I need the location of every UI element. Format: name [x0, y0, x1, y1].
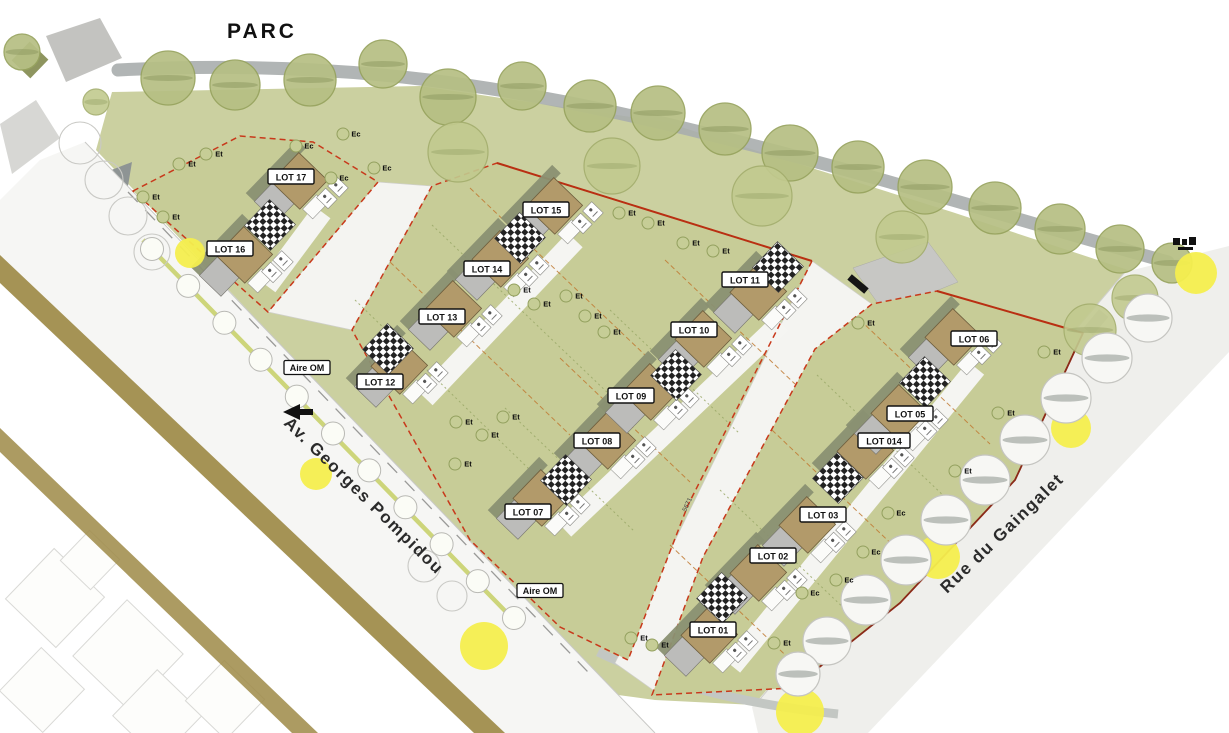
svg-text:LOT 09: LOT 09 — [616, 392, 647, 402]
svg-text:LOT 17: LOT 17 — [276, 173, 307, 183]
tree — [428, 122, 488, 182]
tree — [359, 40, 407, 88]
svg-text:Et: Et — [188, 160, 196, 169]
svg-text:LOT 014: LOT 014 — [866, 437, 902, 447]
svg-text:LOT 01: LOT 01 — [698, 626, 729, 636]
tree — [498, 62, 546, 110]
svg-text:LOT 11: LOT 11 — [730, 276, 760, 286]
lot-label-lot-17: LOT 17 — [268, 169, 314, 184]
tree — [732, 166, 792, 226]
tree — [83, 89, 109, 115]
lot-label-lot-14: LOT 14 — [464, 261, 510, 276]
svg-text:Et: Et — [613, 328, 621, 337]
park-label: PARC — [227, 20, 297, 43]
lot-label-lot-10: LOT 10 — [671, 322, 717, 337]
tree — [284, 54, 336, 106]
tree — [584, 138, 640, 194]
svg-text:Et: Et — [628, 209, 636, 218]
svg-text:LOT 03: LOT 03 — [808, 511, 839, 521]
tree — [141, 51, 195, 105]
tree — [210, 60, 260, 110]
lot-label-lot-02: LOT 02 — [750, 548, 796, 563]
street-tree — [776, 652, 820, 696]
lot-label-lot-13: LOT 13 — [419, 309, 465, 324]
street-tree — [960, 455, 1010, 505]
svg-text:Et: Et — [491, 431, 499, 440]
lot-label-lot-05: LOT 05 — [887, 406, 933, 421]
svg-text:Et: Et — [1053, 348, 1061, 357]
svg-text:LOT 05: LOT 05 — [895, 410, 926, 420]
lot-label-lot-11: LOT 11 — [722, 272, 768, 287]
tree — [1096, 225, 1144, 273]
street-tree — [921, 495, 971, 545]
svg-text:LOT 13: LOT 13 — [427, 313, 458, 323]
svg-text:Et: Et — [575, 292, 583, 301]
lot-label-lot-06: LOT 06 — [951, 331, 997, 346]
svg-text:Et: Et — [465, 418, 473, 427]
svg-text:LOT 10: LOT 10 — [679, 326, 710, 336]
svg-text:Et: Et — [964, 467, 972, 476]
svg-text:Aire OM: Aire OM — [523, 586, 558, 596]
lot-label-lot-07: LOT 07 — [505, 504, 551, 519]
svg-text:Et: Et — [657, 219, 665, 228]
svg-text:Ec: Ec — [871, 548, 880, 557]
tree — [631, 86, 685, 140]
lot-label-lot-15: LOT 15 — [523, 202, 569, 217]
lot-label-lot-08: LOT 08 — [574, 433, 620, 448]
hedge-tree — [285, 385, 308, 408]
lot-label-lot-16: LOT 16 — [207, 241, 253, 256]
lot-label-lot-12: LOT 12 — [357, 374, 403, 389]
tree — [4, 34, 40, 70]
tree — [898, 160, 952, 214]
svg-text:LOT 14: LOT 14 — [472, 265, 503, 275]
lot-label-lot-01: LOT 01 — [690, 622, 736, 637]
svg-text:Et: Et — [692, 239, 700, 248]
street-tree — [1124, 294, 1172, 342]
tree — [876, 211, 928, 263]
yellow-marker — [1175, 252, 1217, 294]
svg-text:LOT 07: LOT 07 — [513, 508, 544, 518]
tree — [832, 141, 884, 193]
svg-text:Ec: Ec — [304, 142, 313, 151]
svg-text:LOT 12: LOT 12 — [365, 378, 396, 388]
hedge-tree — [322, 422, 345, 445]
svg-text:Ec: Ec — [844, 576, 853, 585]
svg-text:Et: Et — [1007, 409, 1015, 418]
svg-text:LOT 15: LOT 15 — [531, 206, 562, 216]
aire-om-label: Aire OM — [517, 584, 563, 598]
tree — [1035, 204, 1085, 254]
tree — [969, 182, 1021, 234]
lot-label-lot-09: LOT 09 — [608, 388, 654, 403]
svg-text:Et: Et — [523, 286, 531, 295]
svg-text:Et: Et — [867, 319, 875, 328]
hedge-tree — [466, 570, 489, 593]
svg-text:Et: Et — [172, 213, 180, 222]
street-tree — [1000, 415, 1050, 465]
svg-text:Et: Et — [722, 247, 730, 256]
svg-text:Ec: Ec — [339, 174, 348, 183]
svg-text:Et: Et — [594, 312, 602, 321]
tree — [564, 80, 616, 132]
tree — [420, 69, 476, 125]
tree — [699, 103, 751, 155]
svg-text:Ec: Ec — [351, 130, 360, 139]
lot-label-lot-014: LOT 014 — [858, 433, 910, 448]
svg-text:Et: Et — [783, 639, 791, 648]
hedge-tree — [213, 311, 236, 334]
site-plan-canvas: EtEtEtEtEcEcEcEcEtEtEtEtEtEtEtEtEtEtEtEt… — [0, 0, 1229, 733]
svg-text:Ec: Ec — [382, 164, 391, 173]
svg-text:LOT 16: LOT 16 — [215, 245, 246, 255]
svg-text:Et: Et — [464, 460, 472, 469]
svg-text:Et: Et — [543, 300, 551, 309]
street-tree — [881, 535, 931, 585]
svg-text:Et: Et — [512, 413, 520, 422]
lot-label-lot-03: LOT 03 — [800, 507, 846, 522]
svg-text:Ec: Ec — [896, 509, 905, 518]
svg-text:Et: Et — [152, 193, 160, 202]
svg-text:LOT 06: LOT 06 — [959, 335, 990, 345]
yellow-marker — [175, 238, 205, 268]
street-tree — [1041, 373, 1091, 423]
yellow-marker — [460, 622, 508, 670]
svg-text:Et: Et — [661, 641, 669, 650]
street-tree — [1082, 333, 1132, 383]
hedge-tree — [503, 607, 526, 630]
hedge-tree — [249, 348, 272, 371]
hedge-tree — [141, 238, 164, 261]
svg-text:Et: Et — [215, 150, 223, 159]
svg-text:LOT 08: LOT 08 — [582, 437, 613, 447]
hedge-tree — [177, 274, 200, 297]
svg-text:LOT 02: LOT 02 — [758, 552, 789, 562]
svg-text:Ec: Ec — [810, 589, 819, 598]
aire-om-label: Aire OM — [284, 361, 330, 375]
svg-text:Aire OM: Aire OM — [290, 363, 325, 373]
